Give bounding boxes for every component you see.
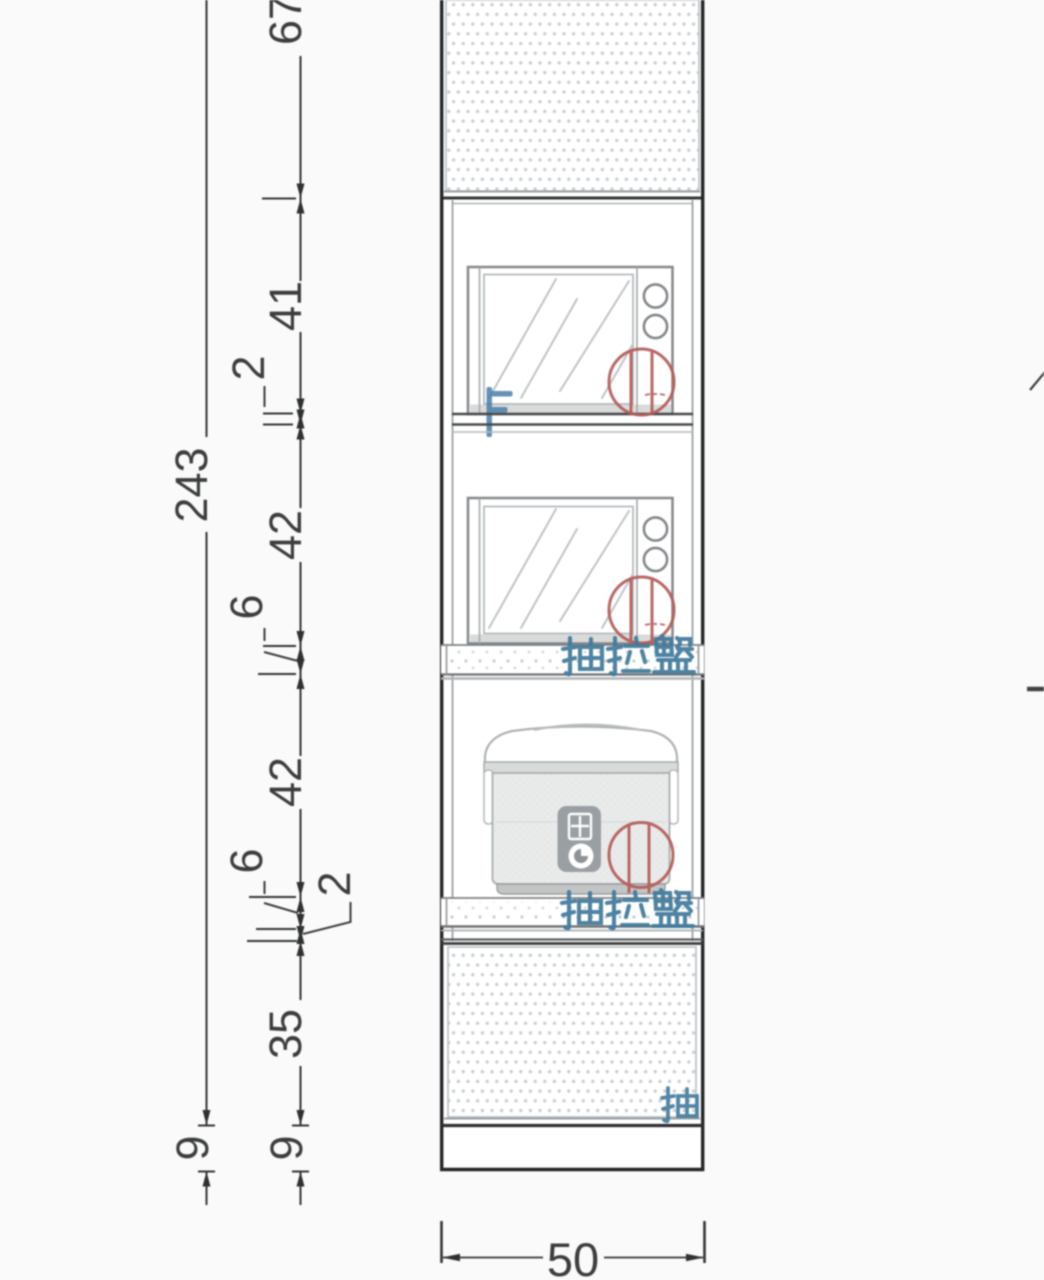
svg-text:50: 50 — [547, 1233, 599, 1280]
svg-text:6: 6 — [221, 848, 272, 873]
svg-text:42: 42 — [260, 510, 311, 560]
svg-text:41: 41 — [260, 281, 311, 331]
svg-text:6: 6 — [221, 594, 272, 619]
svg-text:67: 67 — [260, 0, 311, 45]
svg-text:243: 243 — [166, 447, 217, 522]
svg-text:42: 42 — [260, 757, 311, 807]
svg-text:2: 2 — [223, 355, 274, 380]
svg-text:9: 9 — [261, 1135, 312, 1160]
svg-text:35: 35 — [260, 1009, 311, 1059]
svg-text:2: 2 — [309, 871, 360, 896]
svg-text:9: 9 — [167, 1135, 218, 1160]
